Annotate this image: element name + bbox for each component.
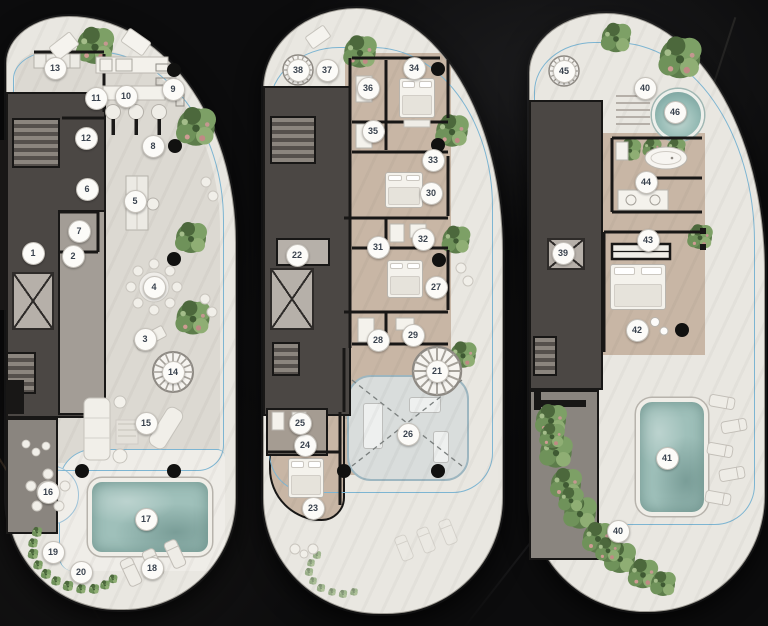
room-marker-14[interactable]: 14 — [162, 361, 185, 384]
stairwell — [272, 342, 300, 376]
room-marker-42[interactable]: 42 — [626, 319, 649, 342]
room-marker-15[interactable]: 15 — [135, 412, 158, 435]
room-marker-41[interactable]: 41 — [656, 447, 679, 470]
room-marker-18[interactable]: 18 — [141, 557, 164, 580]
room-marker-3[interactable]: 3 — [134, 328, 157, 351]
room-marker-34[interactable]: 34 — [403, 57, 426, 80]
floorplan-canvas: 1234567891011121314151617181920212223242… — [0, 0, 768, 626]
room-marker-1[interactable]: 1 — [22, 242, 45, 265]
stairwell — [12, 118, 60, 168]
bed — [387, 260, 423, 298]
room-marker-44[interactable]: 44 — [635, 171, 658, 194]
room-marker-38[interactable]: 38 — [287, 59, 310, 82]
room-marker-2[interactable]: 2 — [62, 245, 85, 268]
room-marker-4[interactable]: 4 — [143, 276, 166, 299]
room-marker-43[interactable]: 43 — [637, 229, 660, 252]
room-marker-46[interactable]: 46 — [664, 101, 687, 124]
room-marker-11[interactable]: 11 — [85, 87, 108, 110]
core-rooms — [529, 390, 599, 560]
room-marker-35[interactable]: 35 — [362, 120, 385, 143]
room-marker-19[interactable]: 19 — [42, 541, 65, 564]
room-marker-9[interactable]: 9 — [162, 78, 185, 101]
core-wall — [8, 380, 24, 414]
room-marker-21[interactable]: 21 — [426, 360, 449, 383]
stairwell — [270, 116, 316, 164]
room-marker-40[interactable]: 40 — [634, 77, 657, 100]
room-marker-25[interactable]: 25 — [289, 412, 312, 435]
room-marker-6[interactable]: 6 — [76, 178, 99, 201]
room-marker-5[interactable]: 5 — [124, 190, 147, 213]
room-marker-36[interactable]: 36 — [357, 77, 380, 100]
room-marker-13[interactable]: 13 — [44, 57, 67, 80]
room-marker-28[interactable]: 28 — [367, 329, 390, 352]
bed — [385, 172, 423, 208]
ghost-table — [409, 397, 441, 413]
room-marker-16[interactable]: 16 — [37, 481, 60, 504]
elevator-shaft — [12, 272, 54, 330]
room-marker-26[interactable]: 26 — [397, 423, 420, 446]
room-marker-8[interactable]: 8 — [142, 135, 165, 158]
bed — [399, 78, 435, 118]
elevator-shaft — [270, 268, 314, 330]
room-marker-45[interactable]: 45 — [553, 60, 576, 83]
room-marker-23[interactable]: 23 — [302, 497, 325, 520]
ghost-chair — [433, 431, 449, 463]
room-marker-40[interactable]: 40 — [607, 520, 630, 543]
room-marker-33[interactable]: 33 — [422, 149, 445, 172]
room-marker-32[interactable]: 32 — [412, 228, 435, 251]
stairwell — [533, 336, 557, 376]
core-wall — [540, 400, 586, 407]
bed-master — [610, 264, 666, 310]
room-marker-37[interactable]: 37 — [316, 59, 339, 82]
bed — [288, 458, 324, 498]
room-marker-39[interactable]: 39 — [552, 242, 575, 265]
room-marker-10[interactable]: 10 — [115, 85, 138, 108]
room-marker-31[interactable]: 31 — [367, 236, 390, 259]
room-marker-22[interactable]: 22 — [286, 244, 309, 267]
room-marker-29[interactable]: 29 — [402, 324, 425, 347]
ghost-sofa — [363, 403, 383, 449]
room-marker-20[interactable]: 20 — [70, 561, 93, 584]
room-marker-12[interactable]: 12 — [75, 127, 98, 150]
room-marker-7[interactable]: 7 — [68, 220, 91, 243]
room-marker-30[interactable]: 30 — [420, 182, 443, 205]
room-marker-27[interactable]: 27 — [425, 276, 448, 299]
core-rooms — [6, 418, 58, 534]
room-marker-24[interactable]: 24 — [294, 434, 317, 457]
room-marker-17[interactable]: 17 — [135, 508, 158, 531]
